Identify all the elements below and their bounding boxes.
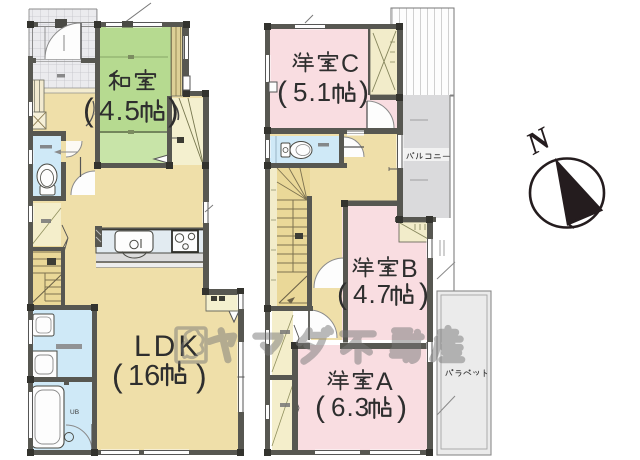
svg-text:6.3: 6.3 [331,392,370,422]
svg-text:UB: UB [70,409,79,416]
svg-text:B: B [401,255,418,283]
svg-text:A: A [376,368,393,396]
svg-text:): ) [419,278,429,311]
svg-text:(: ( [83,92,94,128]
svg-text:4.5: 4.5 [99,95,141,126]
svg-text:16: 16 [128,360,160,392]
svg-text:(: ( [112,358,123,394]
svg-text:(: ( [315,391,325,424]
svg-text:4.7: 4.7 [353,279,392,309]
svg-text:5.1: 5.1 [293,77,332,107]
svg-text:): ) [359,76,369,109]
svg-text:C: C [341,50,359,78]
svg-text:(: ( [337,278,347,311]
svg-text:): ) [397,391,407,424]
svg-text:): ) [168,92,179,128]
svg-text:(: ( [277,76,287,109]
